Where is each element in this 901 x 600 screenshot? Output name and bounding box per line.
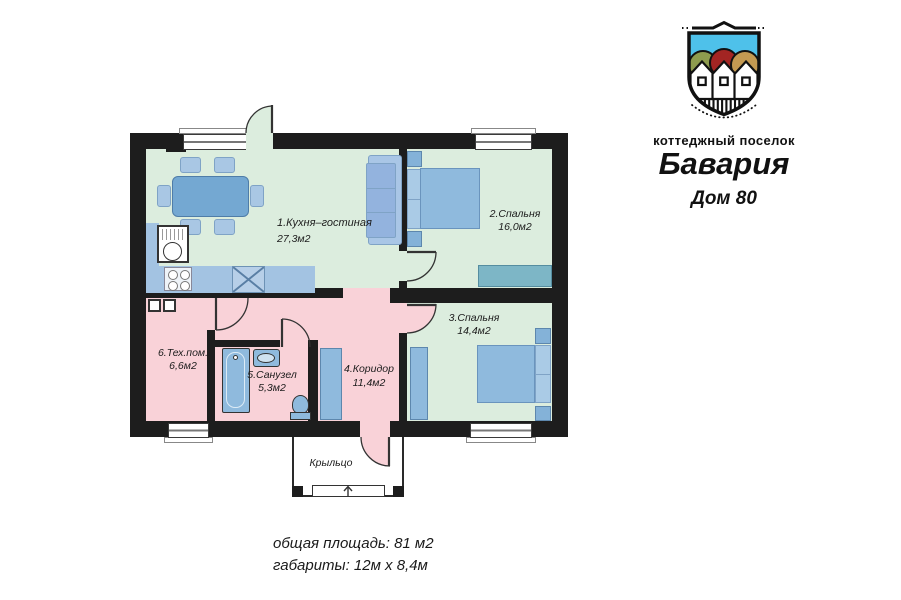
window-bedroom2 bbox=[475, 134, 532, 150]
sink-drainboard bbox=[162, 229, 184, 240]
nightstand bbox=[407, 151, 422, 167]
bed-pillows bbox=[407, 169, 421, 229]
room-area: 6,6м2 bbox=[138, 360, 228, 373]
washbasin-bowl bbox=[257, 353, 275, 363]
interior-wall-bathroom-top bbox=[215, 340, 280, 347]
nightstand bbox=[535, 328, 551, 344]
total-area-text: общая площадь: 81 м2 bbox=[273, 533, 434, 555]
room-area: 27,3м2 bbox=[277, 231, 372, 247]
washbasin bbox=[253, 349, 280, 367]
arch-left bbox=[689, 51, 717, 79]
house-window bbox=[742, 78, 750, 86]
bathtub-drain bbox=[233, 355, 238, 360]
house-icon bbox=[691, 62, 714, 100]
dresser bbox=[478, 265, 552, 287]
room-label-techroom: 6.Тех.пом. 6,6м2 bbox=[138, 347, 228, 373]
room-area: 16,0м2 bbox=[470, 221, 560, 234]
dining-table bbox=[172, 176, 249, 217]
room-label-bedroom2: 2.Спальня 16,0м2 bbox=[470, 208, 560, 234]
nightstand bbox=[535, 406, 551, 421]
stove-burner bbox=[180, 270, 190, 280]
pillow bbox=[536, 346, 550, 375]
pillow bbox=[408, 200, 420, 229]
house-window bbox=[698, 78, 706, 86]
room-label-corridor: 4.Коридор 11,4м2 bbox=[324, 362, 414, 390]
porch-post bbox=[292, 486, 303, 497]
house-icon bbox=[713, 62, 736, 100]
porch-steps bbox=[312, 485, 385, 497]
room-label-bathroom: 5.Санузел 5,3м2 bbox=[227, 369, 317, 395]
pillow bbox=[408, 170, 420, 200]
shield-top-decoration bbox=[682, 23, 766, 29]
interior-wall-bedroom2-stub bbox=[399, 281, 407, 293]
pillow bbox=[536, 375, 550, 403]
bed-bedroom3 bbox=[477, 345, 535, 403]
shield-sky bbox=[689, 33, 759, 77]
room-label-kitchen-living: 1.Кухня–гостиная 27,3м2 bbox=[277, 215, 372, 247]
stove-burner bbox=[168, 281, 178, 291]
house-window bbox=[720, 78, 728, 86]
room-name: 3.Спальня bbox=[429, 312, 519, 325]
dining-chair bbox=[157, 185, 171, 207]
room-name: 4.Коридор bbox=[324, 362, 414, 376]
arch-right bbox=[731, 51, 759, 79]
room-name: 6.Тех.пом. bbox=[138, 347, 228, 360]
stove bbox=[164, 267, 192, 291]
electric-panel bbox=[148, 299, 161, 312]
exterior-wall-right bbox=[552, 133, 568, 437]
sofa-cushion bbox=[367, 189, 395, 214]
window-kitchen bbox=[183, 134, 247, 150]
arch-middle bbox=[710, 49, 738, 77]
logo-shield bbox=[679, 20, 769, 122]
dining-chair bbox=[180, 157, 201, 173]
dining-chair bbox=[214, 219, 235, 235]
room-area: 14,4м2 bbox=[429, 325, 519, 338]
dining-chair bbox=[250, 185, 264, 207]
dimensions-text: габариты: 12м х 8,4м bbox=[273, 555, 434, 577]
house-number: Дом 80 bbox=[624, 188, 824, 210]
porch-post bbox=[393, 486, 404, 497]
room-label-bedroom3: 3.Спальня 14,4м2 bbox=[429, 312, 519, 338]
dining-chair bbox=[214, 157, 235, 173]
exterior-wall-left bbox=[130, 133, 146, 437]
room-name: 5.Санузел bbox=[227, 369, 317, 382]
room-name: 2.Спальня bbox=[470, 208, 560, 221]
houses bbox=[691, 62, 758, 100]
corridor-passage-opening bbox=[343, 288, 390, 298]
room-name: 1.Кухня–гостиная bbox=[277, 215, 372, 231]
interior-wall-divider-right bbox=[390, 288, 552, 303]
sofa-cushion bbox=[367, 164, 395, 189]
kitchen-sink bbox=[157, 225, 189, 263]
porch-label: Крыльцо bbox=[286, 457, 376, 470]
electric-panel bbox=[163, 299, 176, 312]
stove-burner bbox=[180, 281, 190, 291]
room-area: 5,3м2 bbox=[227, 382, 317, 395]
fence-stripes bbox=[692, 98, 757, 118]
stove-burner bbox=[168, 270, 178, 280]
shield-dotted-arc bbox=[692, 105, 756, 118]
kitchen-hob bbox=[232, 266, 265, 293]
window-techroom bbox=[168, 423, 209, 438]
sink-basin bbox=[163, 242, 182, 261]
toilet-tank bbox=[290, 412, 311, 420]
nightstand bbox=[407, 231, 422, 247]
floor-plan-page: 1.Кухня–гостиная 27,3м2 2.Спальня 16,0м2… bbox=[0, 0, 901, 600]
shield-border bbox=[689, 33, 759, 115]
window-bedroom3 bbox=[470, 423, 532, 438]
house-icon bbox=[735, 62, 758, 100]
shield-base bbox=[689, 33, 759, 115]
room-name: Крыльцо bbox=[286, 457, 376, 470]
interior-wall-techroom bbox=[207, 330, 215, 421]
room-area: 11,4м2 bbox=[324, 376, 414, 390]
village-name: Бавария bbox=[624, 146, 824, 182]
bed-pillows bbox=[535, 345, 551, 403]
plan-summary: общая площадь: 81 м2 габариты: 12м х 8,4… bbox=[273, 533, 434, 577]
